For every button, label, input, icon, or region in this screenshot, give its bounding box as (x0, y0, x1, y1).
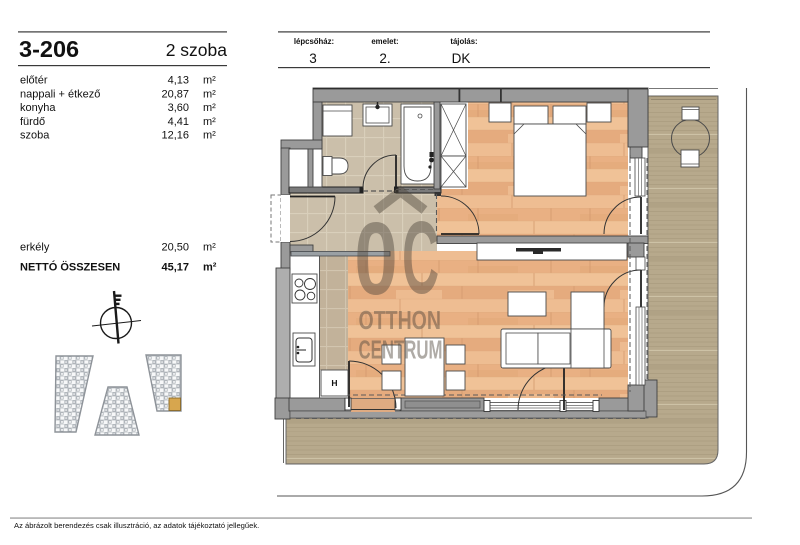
svg-text:H: H (331, 378, 337, 388)
svg-text:erkély: erkély (20, 242, 50, 254)
svg-text:45,17: 45,17 (161, 261, 189, 273)
svg-text:OTTHON: OTTHON (359, 307, 442, 335)
svg-text:Az ábrázolt berendezés csak il: Az ábrázolt berendezés csak illusztráció… (14, 521, 259, 530)
svg-text:CENTRUM: CENTRUM (359, 336, 443, 364)
svg-text:m²: m² (203, 242, 216, 254)
svg-text:12,16: 12,16 (161, 130, 189, 142)
svg-text:2.: 2. (379, 51, 390, 66)
svg-text:0: 0 (354, 202, 398, 317)
svg-text:2 szoba: 2 szoba (166, 40, 228, 60)
svg-text:3: 3 (309, 51, 317, 66)
svg-text:m²: m² (203, 261, 217, 273)
svg-text:lépcsőház:: lépcsőház: (294, 37, 334, 46)
svg-text:m²: m² (203, 116, 216, 128)
svg-text:m²: m² (203, 75, 216, 87)
svg-text:emelet:: emelet: (371, 37, 398, 46)
svg-text:előtér: előtér (20, 75, 48, 87)
svg-text:DK: DK (452, 51, 471, 66)
svg-text:4,13: 4,13 (168, 75, 189, 87)
svg-text:C: C (402, 201, 439, 316)
svg-text:szoba: szoba (20, 130, 50, 142)
svg-text:fürdő: fürdő (20, 116, 45, 128)
svg-text:20,87: 20,87 (161, 88, 189, 100)
svg-text:3,60: 3,60 (168, 102, 189, 114)
svg-text:tájolás:: tájolás: (450, 37, 477, 46)
svg-text:20,50: 20,50 (161, 242, 189, 254)
svg-text:m²: m² (203, 130, 216, 142)
svg-text:3-206: 3-206 (19, 36, 79, 62)
svg-text:m²: m² (203, 102, 216, 114)
svg-text:nappali + étkező: nappali + étkező (20, 88, 100, 100)
svg-text:konyha: konyha (20, 102, 56, 114)
svg-text:m²: m² (203, 88, 216, 100)
svg-text:NETTÓ ÖSSZESEN: NETTÓ ÖSSZESEN (20, 260, 120, 273)
svg-text:4,41: 4,41 (168, 116, 189, 128)
